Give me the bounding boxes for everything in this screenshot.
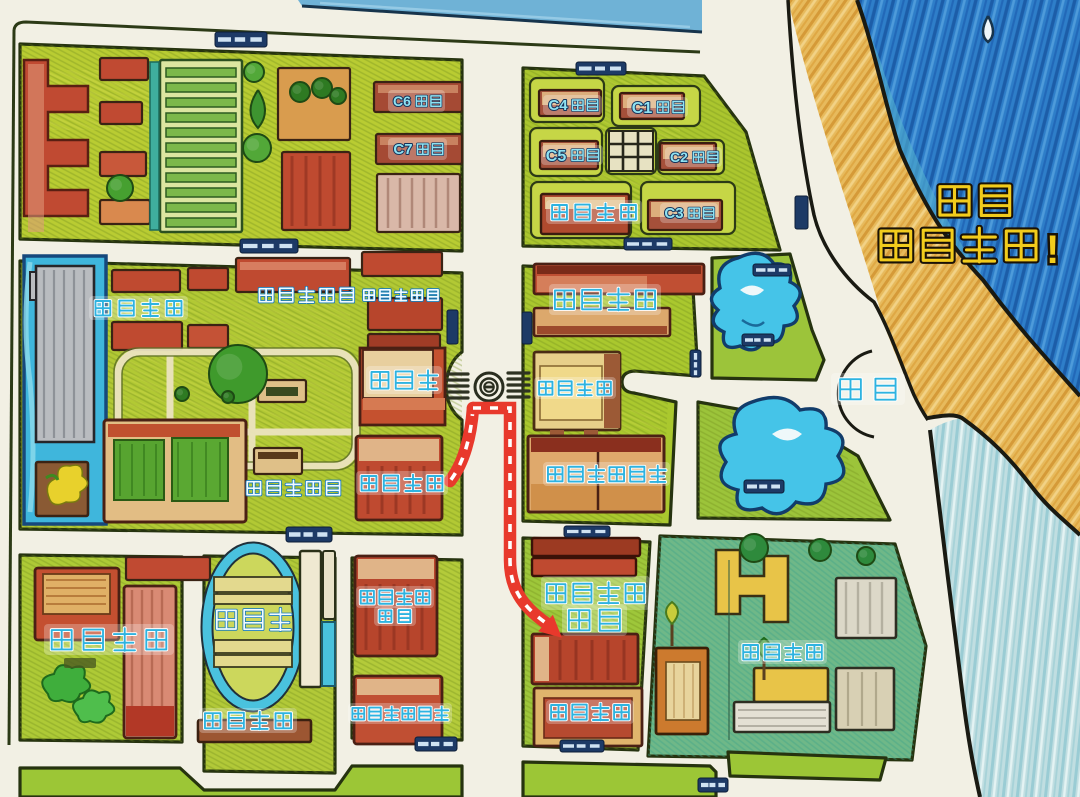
svg-text:C6: C6 [393, 93, 411, 109]
svg-text:C1: C1 [632, 100, 653, 117]
svg-text:C5: C5 [546, 148, 567, 165]
svg-text:C2: C2 [670, 149, 688, 165]
svg-text:!: ! [1046, 228, 1059, 272]
svg-text:C4: C4 [548, 97, 568, 114]
svg-text:C3: C3 [664, 205, 683, 222]
svg-text:C7: C7 [393, 141, 412, 158]
